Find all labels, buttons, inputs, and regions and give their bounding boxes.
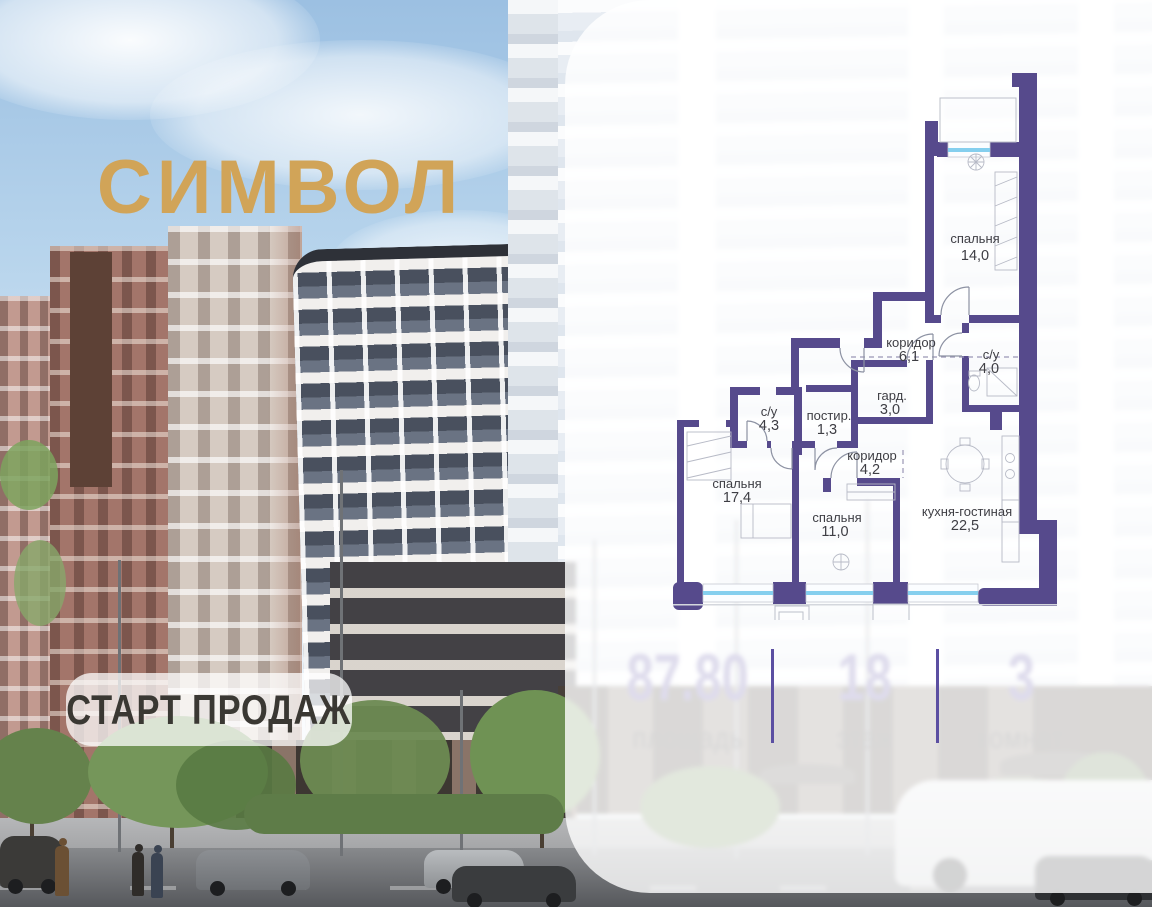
building-brick-core — [70, 252, 112, 487]
brand-logo: СИМВОЛ — [84, 150, 476, 226]
bush-row — [244, 794, 564, 834]
room-name: постир. — [807, 408, 852, 423]
stats-divider — [771, 649, 774, 743]
room-area: 4,2 — [860, 462, 880, 478]
room-name: гард. — [877, 388, 907, 403]
room-name: коридор — [847, 448, 897, 463]
stats-divider — [936, 649, 939, 743]
room-area: 4,3 — [759, 418, 779, 434]
room-area: 6,1 — [899, 349, 919, 365]
car-gray-sedan — [196, 850, 310, 896]
floor-plan-walls — [673, 73, 1057, 610]
room-area: 14,0 — [961, 248, 989, 264]
lamp-pole — [460, 690, 463, 865]
room-name: кухня-гостиная — [922, 504, 1012, 519]
pedestrian — [132, 852, 144, 896]
room-area: 17,4 — [723, 490, 751, 506]
car-dark-sedan — [452, 866, 576, 907]
room-name: с/у — [983, 347, 1000, 362]
room-area: 22,5 — [951, 518, 979, 534]
room-name: коридор — [886, 335, 936, 350]
room-name: спальня — [712, 476, 761, 491]
tree — [14, 540, 66, 626]
floor-plan: спальня 14,0 коридор 6,1 с/у 4,0 гард. 3… — [645, 60, 1065, 620]
sale-start-badge: СТАРТ ПРОДАЖ — [66, 673, 352, 746]
windows — [673, 142, 1057, 606]
sale-start-badge-label: СТАРТ ПРОДАЖ — [67, 686, 352, 734]
room-area: 3,0 — [880, 402, 900, 418]
tree — [0, 440, 58, 510]
room-area: 4,0 — [979, 361, 999, 377]
pedestrian — [151, 853, 163, 898]
pedestrian — [55, 846, 69, 896]
room-name: с/у — [761, 404, 778, 419]
room-area: 11,0 — [821, 524, 848, 540]
room-area: 1,3 — [817, 422, 837, 438]
room-name: спальня — [950, 231, 999, 246]
room-name: спальня — [812, 510, 861, 525]
promo-banner: СИМВОЛ СТАРТ ПРОДАЖ — [0, 0, 1152, 907]
